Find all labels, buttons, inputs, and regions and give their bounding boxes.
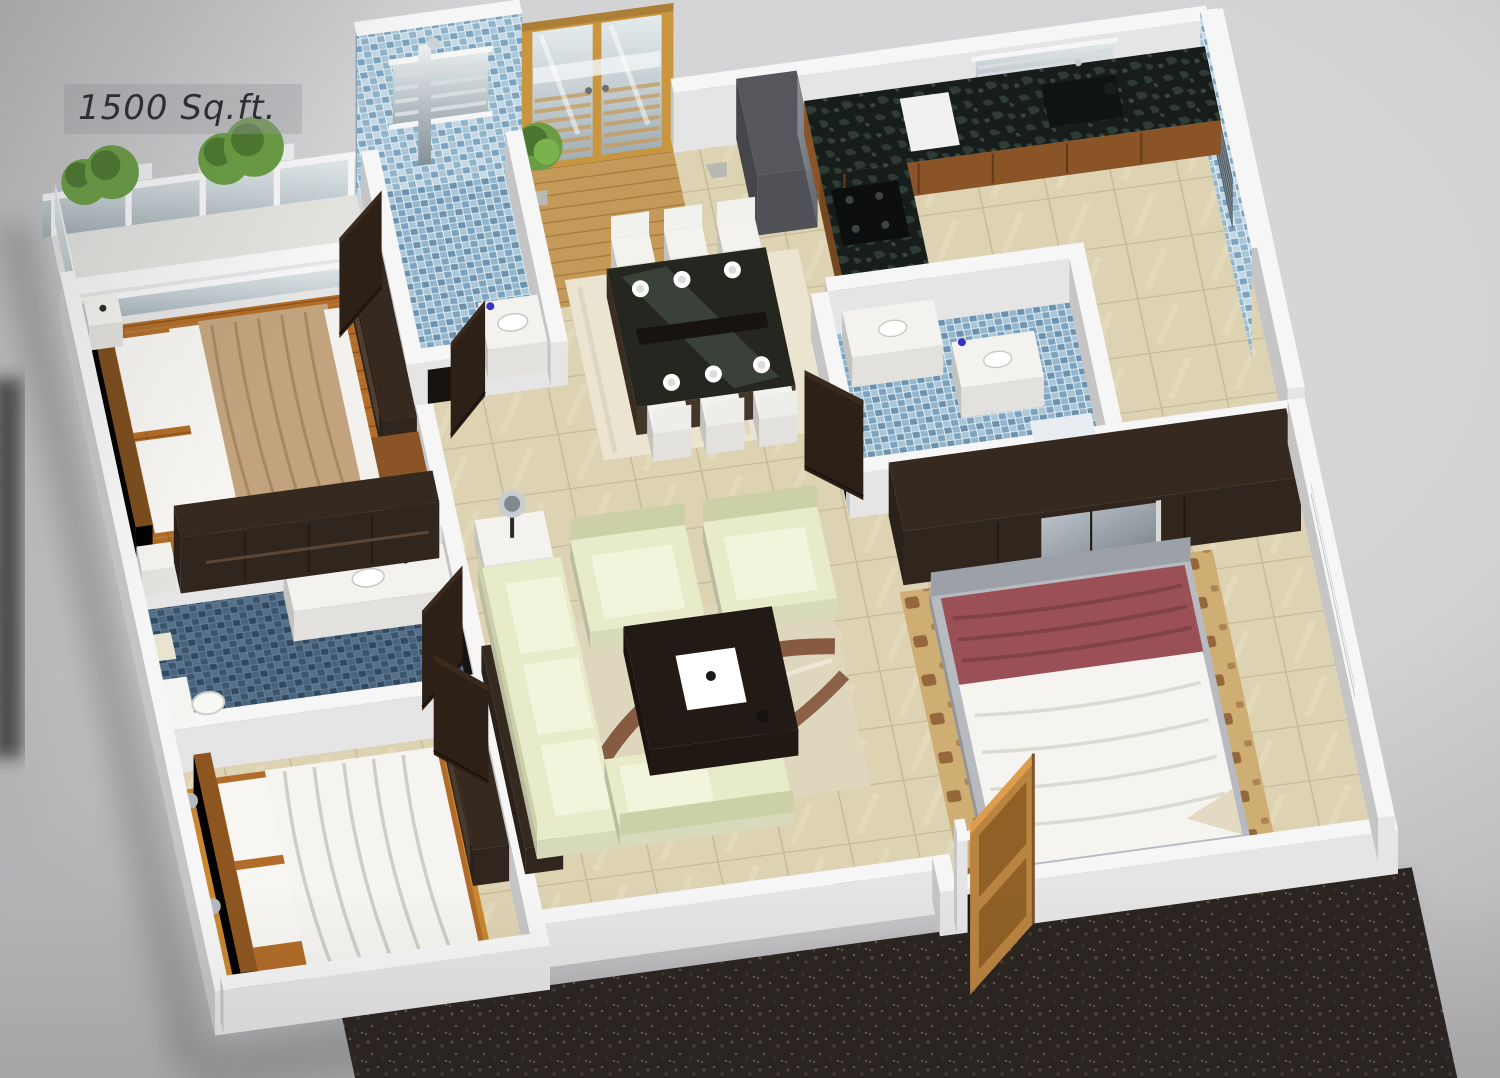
east-wall-south-south xyxy=(1378,816,1395,862)
coffee-table-bowl xyxy=(706,671,716,681)
masterbath-wall-side xyxy=(356,31,357,196)
dining-chair-top xyxy=(664,226,708,259)
bedroom3-door-jamb-west xyxy=(954,820,957,934)
area-label-text: 1500 Sq.ft. xyxy=(78,88,276,128)
shower-panel xyxy=(418,44,431,166)
bedroom3-door-jamb-south xyxy=(957,833,968,935)
south-step-west-south xyxy=(533,946,550,992)
hob-burner xyxy=(852,225,860,233)
dining-chair-south xyxy=(653,429,691,462)
area-label-band: 1500 Sq.ft. xyxy=(64,84,302,134)
foreground-dark-edge xyxy=(0,378,22,758)
master-nightstand-top xyxy=(136,542,175,571)
scene-build-root xyxy=(0,0,1500,1078)
dining-plate-inner xyxy=(728,266,736,274)
entry-door-handle xyxy=(585,87,592,94)
masterbath-east-wall-south xyxy=(551,341,568,387)
shower-head xyxy=(428,38,440,50)
entry-door-stile xyxy=(593,23,602,156)
master-nightstand-south xyxy=(89,322,123,351)
dining-plate-inner xyxy=(758,361,766,369)
wardrobe-seam xyxy=(1090,509,1092,555)
dining-plate-inner xyxy=(678,276,686,284)
dining-plate-inner xyxy=(636,285,644,293)
kitchen-kettle xyxy=(1104,82,1117,95)
balcony-plant-leaf xyxy=(91,150,121,180)
cabinet-seam xyxy=(918,163,920,193)
wardrobe-seam xyxy=(1183,497,1185,543)
armchair-seat xyxy=(724,527,818,601)
hob-burner xyxy=(875,192,883,200)
nightstand-clock xyxy=(99,305,106,312)
dining-chair-top xyxy=(717,219,761,252)
scene-canvas xyxy=(0,0,1500,1078)
cabinet-seam xyxy=(1066,143,1068,173)
cabinet-seam xyxy=(1140,133,1142,163)
armchair-seat xyxy=(591,545,685,619)
coffee-table-decor xyxy=(757,710,769,722)
entry-door-handle xyxy=(602,85,609,92)
masterbath-soap xyxy=(486,302,494,310)
master-nightstand-south xyxy=(142,567,176,596)
kitchen-hob xyxy=(831,181,910,246)
entry-plant-leaf xyxy=(534,139,560,165)
bedroom2-dresser-south xyxy=(473,845,509,886)
balcony-railing-post xyxy=(200,175,206,216)
dining-chair-south xyxy=(706,421,744,454)
dining-chair-top xyxy=(611,233,655,266)
floor-lamp-shade-inner xyxy=(504,496,520,512)
cabinet-seam xyxy=(992,153,994,183)
wardrobe-seam xyxy=(997,522,999,568)
dining-plate-inner xyxy=(668,378,676,386)
balcony-railing-post xyxy=(348,155,354,196)
dining-chair-south xyxy=(759,414,797,447)
hob-burner xyxy=(881,221,889,229)
kitchen-faucet xyxy=(1075,59,1082,66)
hob-burner xyxy=(846,196,854,204)
dining-plate-inner xyxy=(709,370,717,378)
commonbath-soap xyxy=(958,338,966,346)
floor-plan-render: 1500 Sq.ft. xyxy=(0,0,1500,1078)
balcony-railing-post xyxy=(274,165,280,206)
